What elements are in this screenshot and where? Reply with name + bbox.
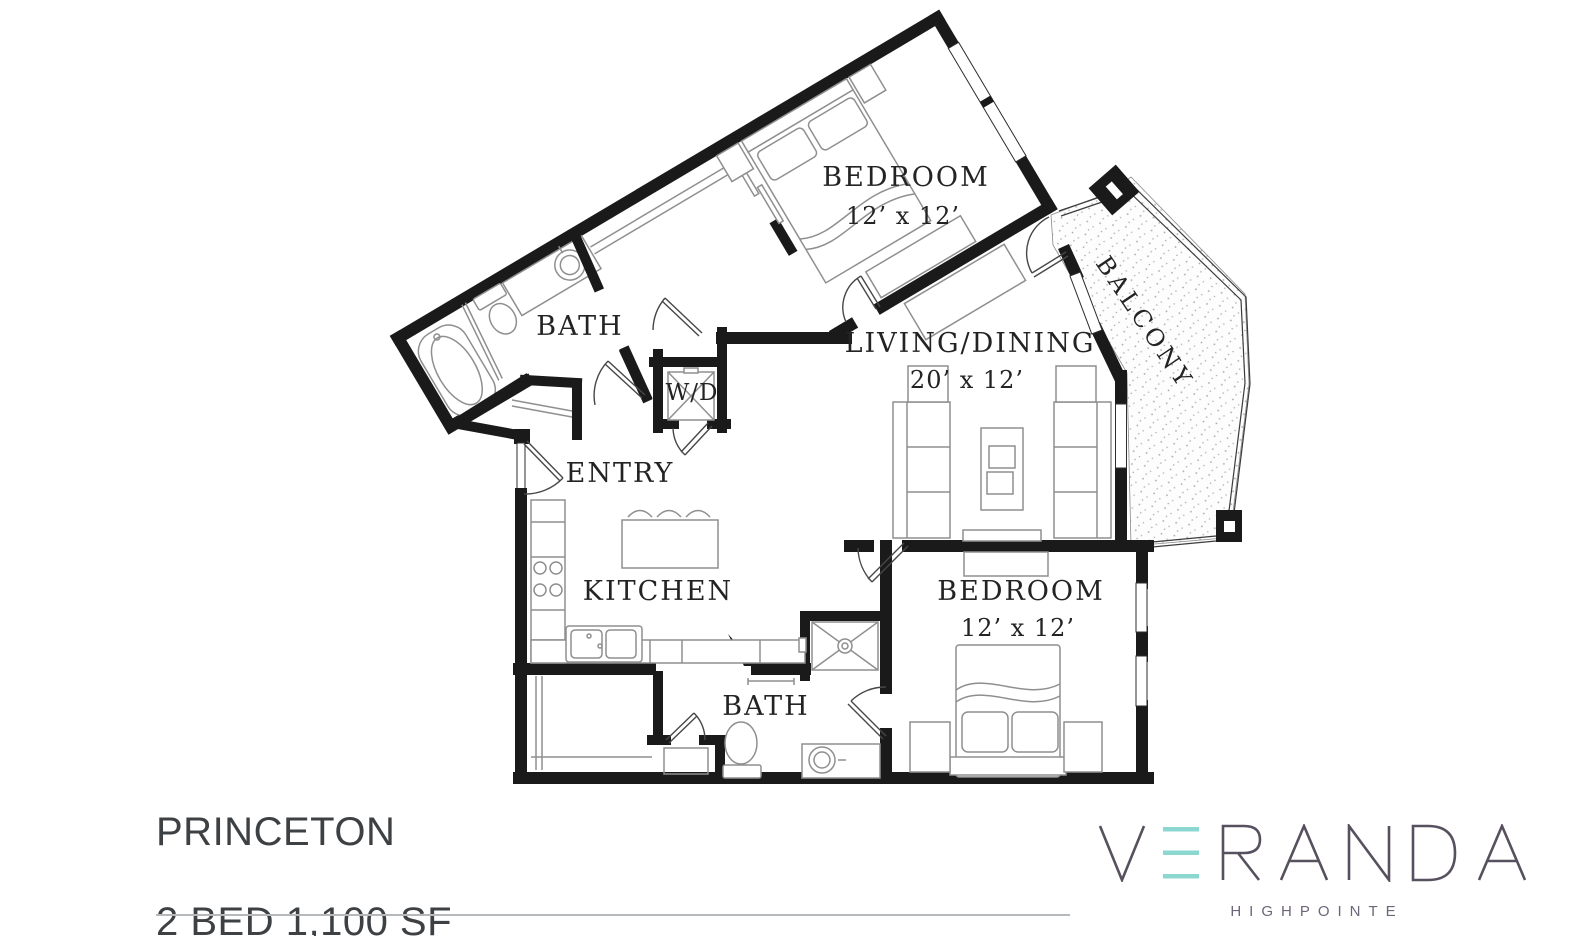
- room-label-living: LIVING/DINING: [845, 328, 1096, 359]
- room-label-bedroom-2: BEDROOM: [937, 576, 1104, 607]
- dresser-2-icon: [964, 552, 1048, 576]
- vanity-2-icon: [802, 744, 880, 778]
- room-label-wd: W/D: [666, 380, 719, 406]
- logo-community-name: HIGHPOINTE: [1093, 903, 1533, 920]
- toilet-2-icon: [723, 722, 761, 778]
- room-label-kitchen: KITCHEN: [583, 576, 733, 607]
- floor-plan-page: BEDROOM 12’ x 12’ BATH W/D LIVING/DINING…: [0, 0, 1590, 936]
- nightstand-2b-icon: [1064, 722, 1102, 772]
- logo-e-bars-icon: [1163, 827, 1199, 879]
- veranda-logo: HIGHPOINTE: [1093, 824, 1533, 920]
- balcony-post-bottom: [1216, 510, 1242, 542]
- coat-closet-rod: [512, 400, 572, 417]
- living-window-b: [1116, 404, 1127, 468]
- tv-console-icon: [963, 530, 1041, 541]
- kitchen-island-icon: [622, 511, 718, 569]
- plan-spec: 2 BED 1,100 SF: [156, 900, 452, 936]
- towel-bar-icon: [748, 678, 794, 685]
- room-label-entry: ENTRY: [566, 458, 675, 489]
- footer-divider: [156, 914, 1070, 916]
- sofa-right-icon: [1054, 402, 1111, 538]
- plan-name: PRINCETON: [156, 810, 395, 854]
- room-dims-bedroom-2: 12’ x 12’: [961, 614, 1075, 642]
- sofa-left-icon: [893, 402, 950, 538]
- upper-wing-walls: [398, 18, 1049, 527]
- bedroom-2-window-b: [1136, 656, 1147, 706]
- bed-2-icon: [950, 645, 1066, 777]
- linen-closet: [664, 748, 708, 774]
- upper-wing: [398, 15, 1055, 527]
- room-dims-bedroom-1: 12’ x 12’: [846, 202, 960, 230]
- coffee-table-icon: [981, 428, 1023, 510]
- entry-sidelight: [517, 443, 525, 495]
- room-label-bath-1: BATH: [536, 311, 623, 342]
- room-label-bedroom-1: BEDROOM: [822, 162, 989, 193]
- kitchen-sink-icon: [566, 626, 642, 662]
- nightstand-2a-icon: [910, 722, 950, 772]
- bedroom-2-window-a: [1136, 583, 1147, 632]
- room-label-bath-2: BATH: [722, 691, 809, 722]
- floor-plan-svg: BEDROOM 12’ x 12’ BATH W/D LIVING/DINING…: [0, 0, 1590, 820]
- room-dims-living: 20’ x 12’: [910, 366, 1024, 394]
- shower-icon: [799, 622, 878, 670]
- end-table-right-icon: [1056, 366, 1096, 402]
- closet-shelves: [531, 676, 652, 770]
- plan-title: PRINCETON 2 BED 1,100 SF: [156, 810, 452, 936]
- veranda-wordmark-icon: [1093, 824, 1533, 882]
- closet-bypass-doors: [589, 154, 783, 312]
